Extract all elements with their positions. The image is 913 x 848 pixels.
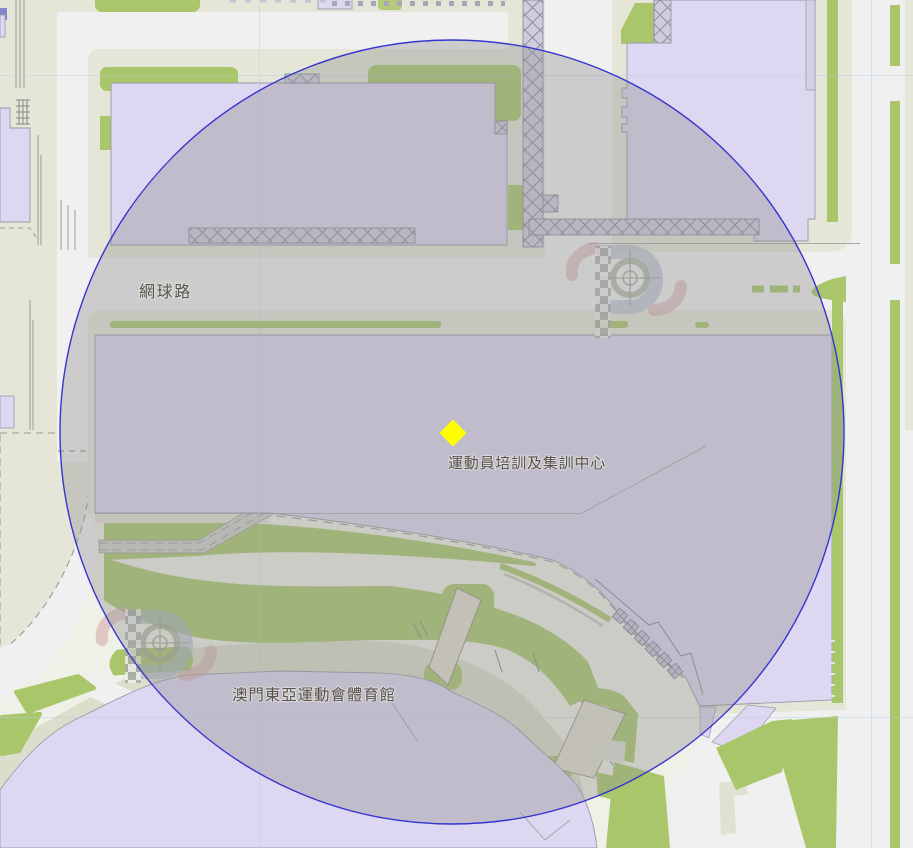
- svg-text:網球路: 網球路: [139, 283, 192, 301]
- svg-text:澳門東亞運動會體育館: 澳門東亞運動會體育館: [232, 686, 396, 704]
- svg-text:運動員培訓及集訓中心: 運動員培訓及集訓中心: [448, 455, 606, 472]
